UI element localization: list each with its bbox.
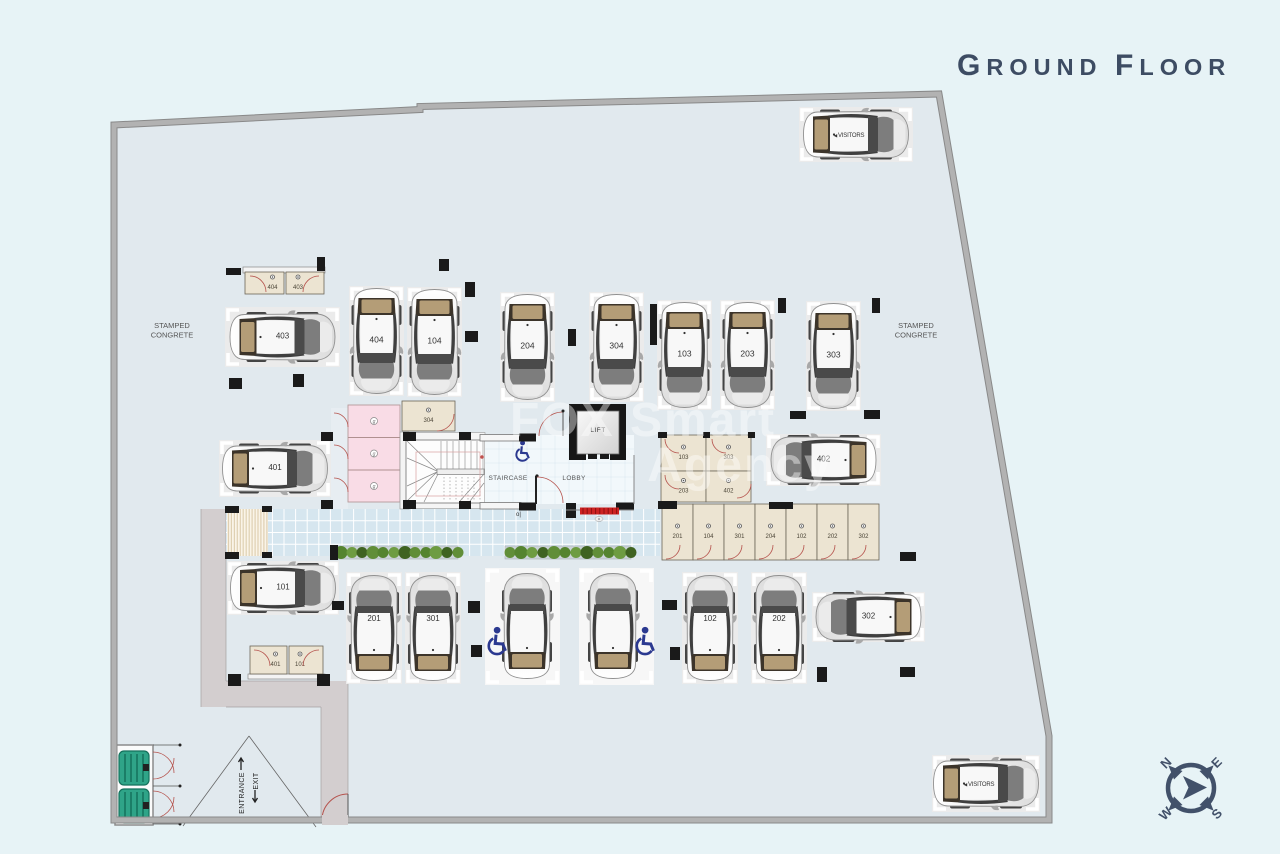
svg-text:403: 403: [293, 285, 304, 291]
svg-text:g: g: [373, 419, 376, 425]
svg-text:101: 101: [276, 583, 290, 592]
svg-text:401: 401: [268, 463, 282, 472]
svg-text:CONGRETE: CONGRETE: [895, 331, 938, 340]
svg-text:204: 204: [520, 341, 534, 351]
svg-text:403: 403: [276, 332, 290, 341]
svg-text:404: 404: [267, 285, 278, 291]
svg-text:◀ VISITORS: ◀ VISITORS: [834, 133, 865, 139]
svg-text:102: 102: [703, 614, 717, 623]
svg-text:201: 201: [367, 614, 381, 623]
svg-text:202: 202: [827, 534, 838, 540]
svg-text:CONGRETE: CONGRETE: [151, 331, 194, 340]
svg-text:202: 202: [772, 614, 786, 623]
svg-text:EXIT: EXIT: [253, 772, 260, 789]
svg-text:102: 102: [796, 534, 807, 540]
svg-text:STAIRCASE: STAIRCASE: [488, 475, 527, 482]
svg-text:STAMPED: STAMPED: [154, 321, 190, 330]
svg-text:302: 302: [858, 534, 869, 540]
svg-text:101: 101: [295, 662, 306, 668]
svg-text:301: 301: [734, 534, 745, 540]
svg-text:Agency: Agency: [647, 439, 832, 492]
svg-text:104: 104: [703, 534, 714, 540]
svg-text:301: 301: [426, 614, 440, 623]
svg-text:LOBBY: LOBBY: [562, 475, 586, 482]
svg-text:ENTRANCE: ENTRANCE: [239, 772, 246, 814]
svg-text:◀ VISITORS: ◀ VISITORS: [964, 782, 995, 788]
svg-text:304: 304: [609, 341, 623, 351]
svg-text:304: 304: [423, 418, 434, 424]
svg-text:g: g: [373, 484, 376, 490]
svg-text:302: 302: [862, 612, 876, 621]
svg-text:404: 404: [369, 335, 383, 345]
svg-text:o|: o|: [516, 512, 521, 518]
svg-text:204: 204: [765, 534, 776, 540]
svg-text:GROUND FLOOR: GROUND FLOOR: [957, 49, 1231, 82]
svg-text:203: 203: [740, 349, 754, 359]
svg-text:104: 104: [427, 336, 441, 346]
svg-text:g: g: [373, 452, 376, 458]
svg-text:303: 303: [826, 350, 840, 360]
svg-text:201: 201: [672, 534, 683, 540]
svg-text:STAMPED: STAMPED: [898, 321, 934, 330]
svg-text:103: 103: [677, 349, 691, 359]
svg-text:401: 401: [270, 662, 281, 668]
